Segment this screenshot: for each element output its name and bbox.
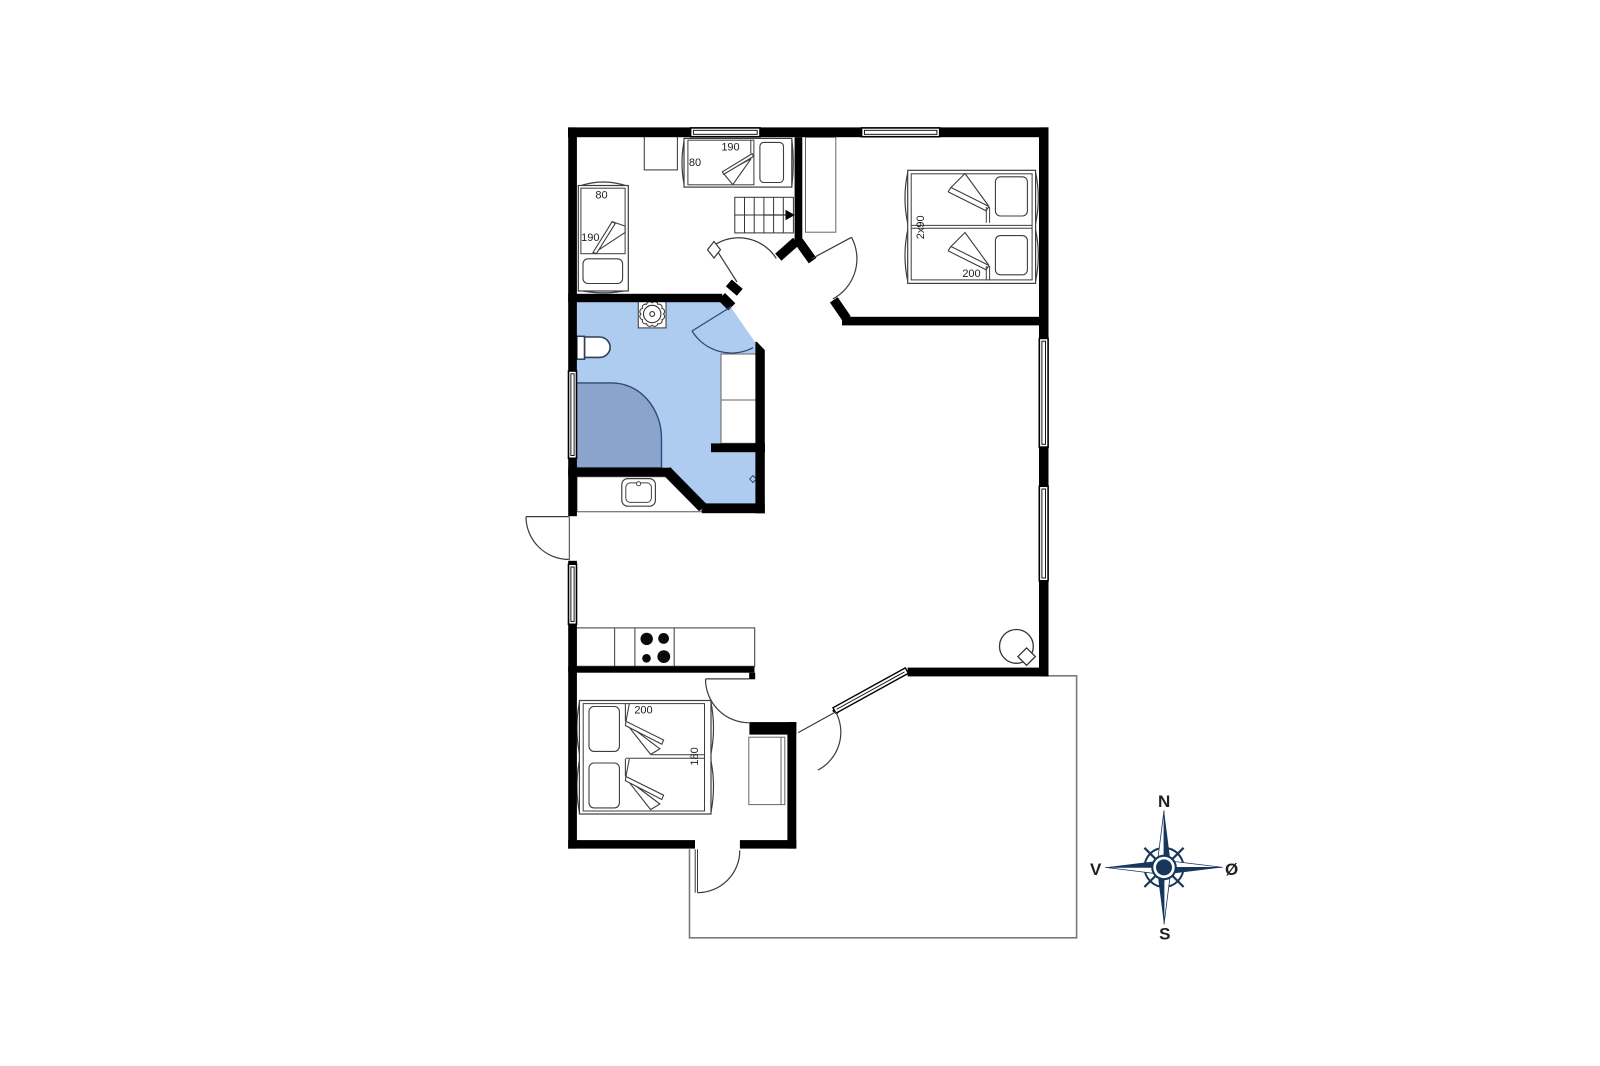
svg-text:S: S <box>1159 925 1170 944</box>
svg-text:N: N <box>1158 792 1170 811</box>
svg-text:190: 190 <box>581 232 599 244</box>
svg-text:80: 80 <box>595 190 607 202</box>
svg-text:190: 190 <box>721 142 739 154</box>
svg-text:200: 200 <box>634 705 652 717</box>
svg-text:200: 200 <box>962 268 980 280</box>
svg-text:V: V <box>1090 860 1102 879</box>
svg-text:2x90: 2x90 <box>915 215 927 239</box>
svg-text:180: 180 <box>689 747 701 765</box>
svg-text:80: 80 <box>689 157 701 169</box>
svg-text:Ø: Ø <box>1225 860 1238 879</box>
